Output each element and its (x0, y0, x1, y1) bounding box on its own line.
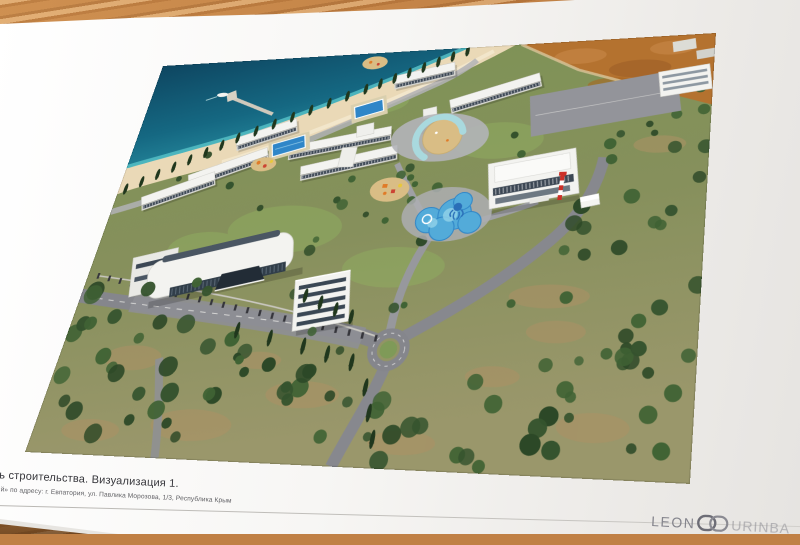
photo-of-binded-album: { "caption": { "title": "дь строительств… (0, 0, 800, 534)
tower-block (292, 270, 355, 337)
brand-prefix: LEON (651, 513, 696, 531)
brand-monogram-icon (696, 513, 731, 533)
